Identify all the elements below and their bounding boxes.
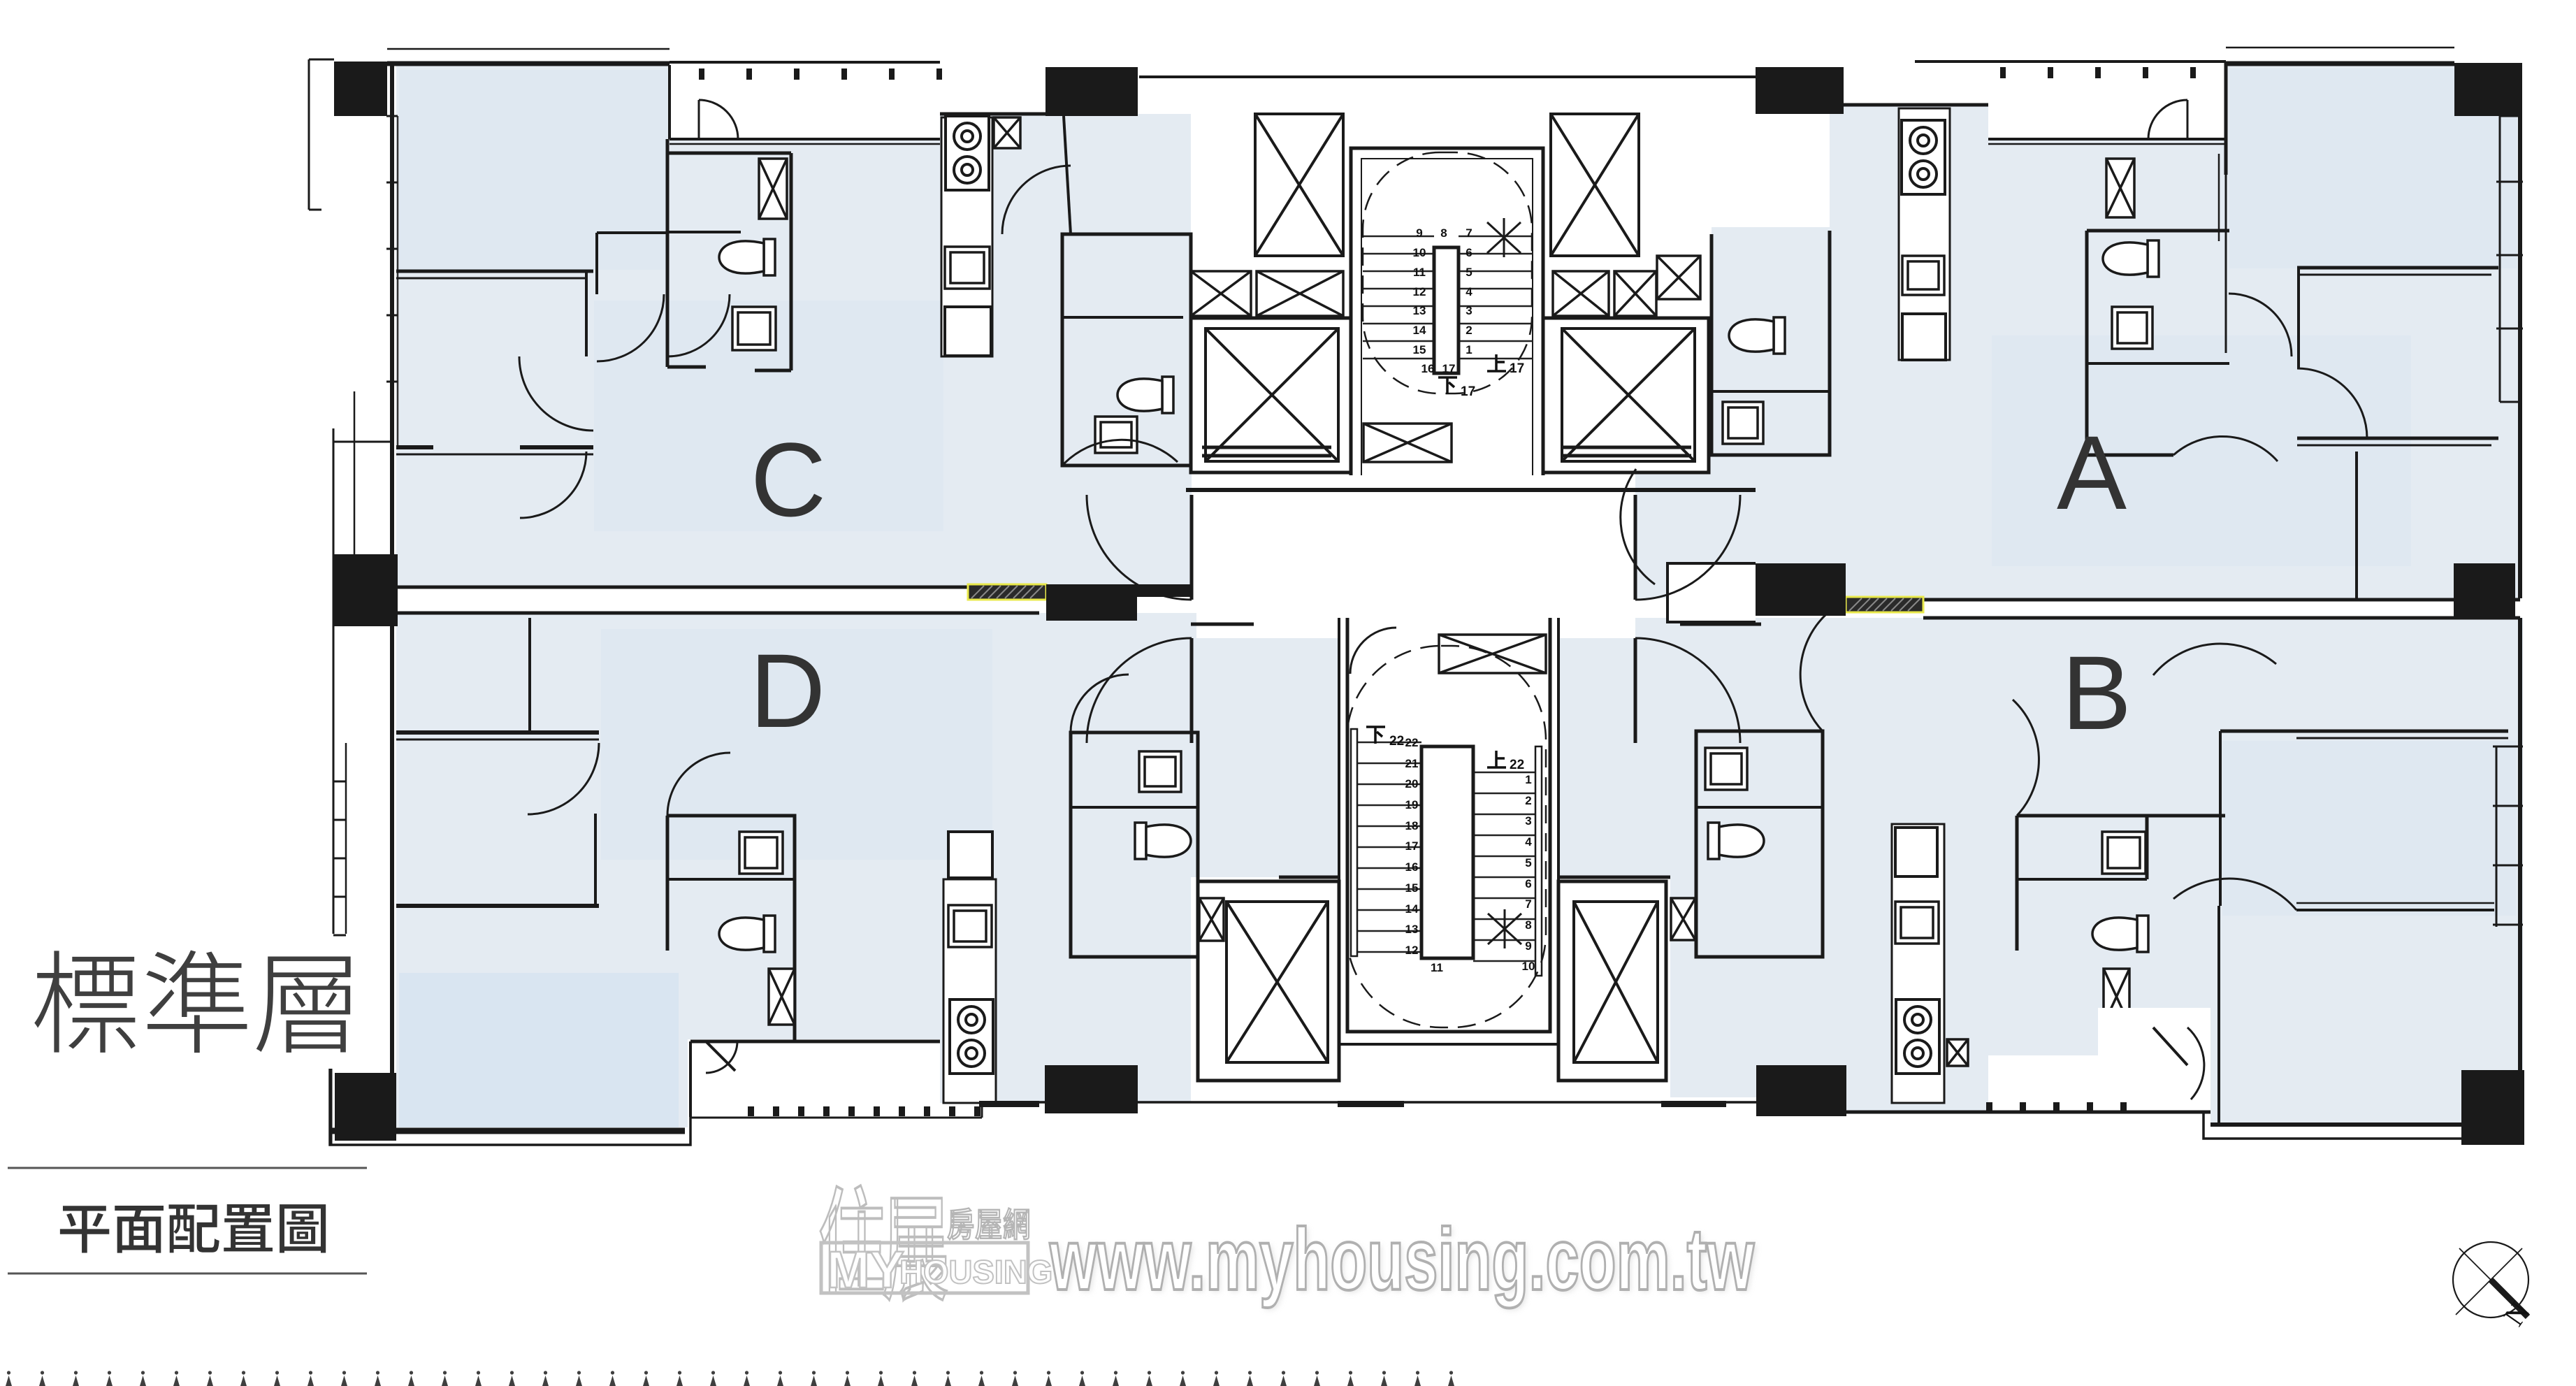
svg-text:16: 16 xyxy=(1421,362,1435,375)
svg-text:7: 7 xyxy=(1466,226,1472,240)
svg-text:4: 4 xyxy=(1466,285,1472,298)
svg-text:17: 17 xyxy=(1510,361,1524,376)
svg-text:14: 14 xyxy=(1413,324,1426,337)
svg-text:19: 19 xyxy=(1405,798,1419,811)
svg-text:12: 12 xyxy=(1413,285,1426,298)
svg-text:8: 8 xyxy=(1440,226,1447,240)
svg-text:C: C xyxy=(751,421,826,538)
svg-text:10: 10 xyxy=(1522,960,1535,973)
svg-text:8: 8 xyxy=(1525,918,1531,932)
svg-text:2: 2 xyxy=(1525,794,1531,807)
svg-text:13: 13 xyxy=(1405,923,1419,936)
svg-text:3: 3 xyxy=(1466,304,1472,317)
svg-text:17: 17 xyxy=(1442,362,1456,375)
svg-text:12: 12 xyxy=(1405,944,1419,957)
svg-text:9: 9 xyxy=(1416,226,1422,240)
svg-text:15: 15 xyxy=(1413,343,1426,356)
svg-text:4: 4 xyxy=(1525,835,1532,849)
svg-text:D: D xyxy=(750,632,825,749)
svg-text:6: 6 xyxy=(1525,877,1531,890)
svg-text:HOUSING: HOUSING xyxy=(899,1253,1052,1290)
svg-text:A: A xyxy=(2057,414,2127,531)
svg-text:18: 18 xyxy=(1405,819,1419,832)
svg-text:15: 15 xyxy=(1405,881,1419,895)
svg-text:7: 7 xyxy=(1525,897,1531,911)
svg-text:5: 5 xyxy=(1525,856,1531,869)
svg-text:www.myhousing.com.tw: www.myhousing.com.tw xyxy=(1049,1211,1754,1308)
svg-text:5: 5 xyxy=(1466,266,1472,279)
svg-text:1: 1 xyxy=(1525,773,1531,786)
svg-text:13: 13 xyxy=(1413,304,1426,317)
svg-text:1: 1 xyxy=(1466,343,1472,356)
svg-text:3: 3 xyxy=(1525,814,1531,828)
svg-text:22: 22 xyxy=(1405,736,1419,749)
svg-text:14: 14 xyxy=(1405,902,1419,916)
svg-text:B: B xyxy=(2062,634,2132,751)
svg-text:2: 2 xyxy=(1466,324,1472,337)
svg-text:20: 20 xyxy=(1405,777,1419,791)
svg-text:16: 16 xyxy=(1405,860,1419,874)
svg-text:10: 10 xyxy=(1413,246,1426,259)
svg-text:11: 11 xyxy=(1431,961,1443,974)
svg-text:17: 17 xyxy=(1461,384,1475,399)
svg-text:17: 17 xyxy=(1405,839,1419,853)
svg-text:MY: MY xyxy=(827,1241,904,1299)
svg-text:22: 22 xyxy=(1389,734,1404,749)
svg-text:22: 22 xyxy=(1510,758,1524,772)
svg-text:21: 21 xyxy=(1405,757,1419,770)
svg-text:11: 11 xyxy=(1413,266,1426,279)
svg-text:9: 9 xyxy=(1525,939,1531,953)
svg-text:6: 6 xyxy=(1466,246,1472,259)
